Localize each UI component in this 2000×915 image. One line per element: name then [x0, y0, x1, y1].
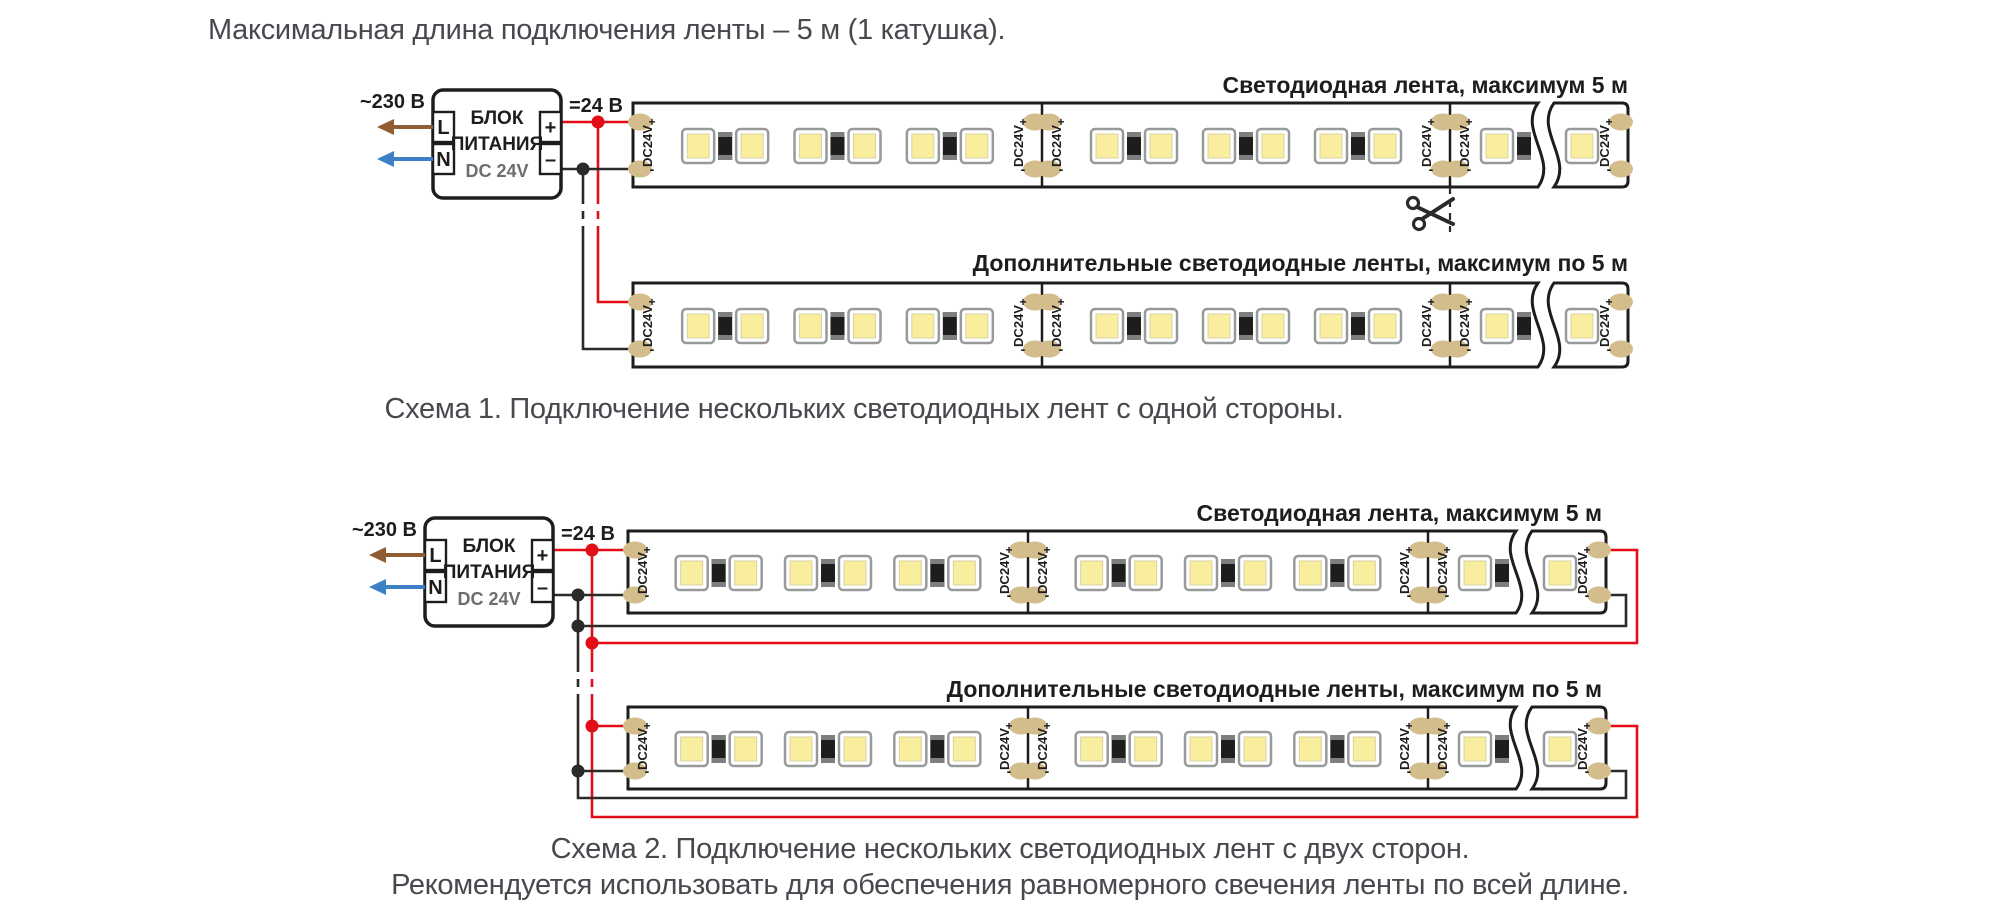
resistor-cap [831, 132, 845, 137]
led [1315, 129, 1347, 163]
resistor [1517, 132, 1531, 160]
strip-voltage-label: DC24V [997, 552, 1012, 594]
resistor-cap [1239, 132, 1253, 137]
led [1130, 732, 1162, 766]
led [839, 556, 871, 590]
led-chip [1150, 314, 1172, 338]
led-chip [1150, 134, 1172, 158]
resistor-cap [821, 758, 835, 763]
led [1203, 129, 1235, 163]
resistor [1112, 559, 1126, 587]
strip-voltage-label: DC24V [1397, 552, 1412, 594]
resistor-cap [712, 559, 726, 564]
resistor [712, 559, 726, 587]
resistor-cap [718, 335, 732, 340]
resistor [1221, 735, 1235, 763]
terminal-L-label: L [437, 117, 449, 139]
led-chip [1208, 134, 1230, 158]
resistor-cap [1517, 155, 1531, 160]
led-chip [1190, 737, 1212, 761]
resistor-cap [718, 132, 732, 137]
resistor [1239, 312, 1253, 340]
solder-pad-minus [1609, 341, 1633, 358]
led-chip [1549, 737, 1571, 761]
scheme1-strip2-label: Дополнительные светодиодные ленты, макси… [973, 250, 1628, 276]
led [1294, 732, 1326, 766]
led [1185, 732, 1217, 766]
resistor [1127, 132, 1141, 160]
led [1091, 309, 1123, 343]
led [1348, 732, 1380, 766]
led [795, 129, 827, 163]
junction-dot [586, 720, 599, 733]
solder-pad-plus [1609, 294, 1633, 311]
led [1294, 556, 1326, 590]
resistor-cap [1127, 132, 1141, 137]
led [948, 732, 980, 766]
led-chip [741, 314, 763, 338]
resistor [1239, 132, 1253, 160]
led-chip [800, 314, 822, 338]
led-chip [1464, 737, 1486, 761]
resistor-cap [1221, 735, 1235, 740]
resistor-cap [1127, 155, 1141, 160]
led-chip [844, 737, 866, 761]
led [1257, 309, 1289, 343]
led-chip [1135, 561, 1157, 585]
led-chip [899, 737, 921, 761]
resistor-cap [1221, 758, 1235, 763]
scheme2-strip2-label: Дополнительные светодиодные ленты, макси… [947, 676, 1602, 702]
resistor-cap [712, 735, 726, 740]
led-chip [854, 314, 876, 338]
led [1239, 732, 1271, 766]
led [1481, 309, 1513, 343]
resistor-cap [831, 335, 845, 340]
resistor-cap [943, 312, 957, 317]
solder-pad-plus [1609, 114, 1633, 131]
led [1566, 309, 1598, 343]
led-chip [1208, 314, 1230, 338]
led-chip [844, 561, 866, 585]
led-chip [1353, 561, 1375, 585]
led-chip [854, 134, 876, 158]
resistor-cap [821, 559, 835, 564]
terminal-minus-label: – [545, 149, 556, 171]
arrow-left-L-icon [369, 547, 386, 563]
led [961, 309, 993, 343]
resistor-cap [930, 735, 944, 740]
resistor-cap [1330, 559, 1344, 564]
strip-voltage-label: DC24V [1419, 125, 1434, 167]
led [1185, 556, 1217, 590]
led [907, 309, 939, 343]
resistor [943, 132, 957, 160]
resistor-cap [1127, 312, 1141, 317]
psu-name-line2: ПИТАНИЯ [451, 134, 543, 155]
strip-voltage-label: DC24V [1575, 552, 1590, 594]
resistor [1495, 735, 1509, 763]
resistor-cap [1517, 312, 1531, 317]
strip-voltage-label: DC24V [1575, 728, 1590, 770]
led [1091, 129, 1123, 163]
junction-dot [586, 544, 599, 557]
terminal-L-label: L [429, 545, 441, 567]
led-chip [1320, 314, 1342, 338]
scheme1-caption: Схема 1. Подключение нескольких светодио… [384, 393, 1343, 426]
led [1257, 129, 1289, 163]
led [849, 129, 881, 163]
solder-pad-minus [1587, 763, 1611, 780]
led [1544, 732, 1576, 766]
resistor-cap [1112, 758, 1126, 763]
junction-dot [586, 637, 599, 650]
strip-voltage-label: DC24V [1035, 552, 1050, 594]
led [730, 732, 762, 766]
scheme2-caption-line1: Схема 2. Подключение нескольких светодио… [551, 833, 1470, 866]
resistor-cap [1239, 155, 1253, 160]
led-strip-additional: +-DC24V+-DC24V+-DC24V+-DC24V+-DC24V+-DC2… [628, 283, 1633, 367]
led [894, 732, 926, 766]
junction-dot [592, 116, 605, 129]
resistor-cap [1351, 132, 1365, 137]
scheme-2: LN+–БЛОКПИТАНИЯDC 24V~230 В=24 В+-DC24V+… [352, 500, 1637, 817]
led-chip [1464, 561, 1486, 585]
resistor-cap [943, 155, 957, 160]
led [1459, 732, 1491, 766]
resistor-cap [1330, 582, 1344, 587]
psu-name-line1: БЛОК [463, 536, 516, 557]
led [1315, 309, 1347, 343]
led [849, 309, 881, 343]
resistor-cap [1112, 559, 1126, 564]
connection-diagrams: LN+–БЛОКПИТАНИЯDC 24V~230 В=24 В+-DC24V+… [0, 0, 2000, 915]
resistor [718, 312, 732, 340]
resistor-cap [712, 582, 726, 587]
psu-name-line1: БЛОК [471, 108, 524, 129]
resistor-cap [1239, 335, 1253, 340]
led-strip-additional: +-DC24V+-DC24V+-DC24V+-DC24V+-DC24V+-DC2… [623, 707, 1611, 789]
resistor-cap [1330, 735, 1344, 740]
resistor [821, 735, 835, 763]
resistor-cap [943, 132, 957, 137]
led [839, 732, 871, 766]
solder-pad-minus [1609, 161, 1633, 178]
solder-pad-plus [1587, 542, 1611, 559]
resistor-cap [1221, 559, 1235, 564]
terminal-plus-label: + [545, 117, 557, 139]
resistor [1351, 132, 1365, 160]
led [682, 309, 714, 343]
resistor [943, 312, 957, 340]
resistor [1127, 312, 1141, 340]
resistor [1330, 735, 1344, 763]
resistor [1112, 735, 1126, 763]
resistor-cap [1351, 312, 1365, 317]
strip-voltage-label: DC24V [1419, 305, 1434, 347]
led-chip [966, 314, 988, 338]
resistor-cap [831, 312, 845, 317]
resistor-cap [712, 758, 726, 763]
resistor-cap [1112, 582, 1126, 587]
arrow-left-N-icon [377, 151, 394, 167]
psu-voltage-label: DC 24V [465, 161, 528, 181]
strip-voltage-label: DC24V [635, 552, 650, 594]
resistor-cap [1239, 312, 1253, 317]
psu-name-line2: ПИТАНИЯ [443, 562, 535, 583]
led-chip [1081, 737, 1103, 761]
resistor-cap [1517, 335, 1531, 340]
strip-voltage-label: DC24V [1049, 125, 1064, 167]
led [1459, 556, 1491, 590]
resistor-cap [831, 155, 845, 160]
resistor [1330, 559, 1344, 587]
led [1145, 129, 1177, 163]
led [785, 732, 817, 766]
led [961, 129, 993, 163]
strip-voltage-label: DC24V [1035, 728, 1050, 770]
strip-voltage-label: DC24V [1435, 728, 1450, 770]
strip-voltage-label: DC24V [1011, 305, 1026, 347]
strip-voltage-label: DC24V [1011, 125, 1026, 167]
led-strip-main: +-DC24V+-DC24V+-DC24V+-DC24V+-DC24V+-DC2… [628, 103, 1633, 232]
led [1544, 556, 1576, 590]
junction-dot [572, 589, 585, 602]
strip-voltage-label: DC24V [997, 728, 1012, 770]
output-voltage-label: =24 В [569, 95, 623, 117]
led [1130, 556, 1162, 590]
led-chip [1320, 134, 1342, 158]
junction-dot [572, 620, 585, 633]
mains-voltage-label: ~230 В [360, 91, 425, 113]
resistor-cap [1495, 735, 1509, 740]
led-chip [1096, 134, 1118, 158]
solder-pad-minus [1587, 587, 1611, 604]
strip-voltage-label: DC24V [1049, 305, 1064, 347]
led-chip [1244, 561, 1266, 585]
resistor [1221, 559, 1235, 587]
psu-voltage-label: DC 24V [457, 589, 520, 609]
led-chip [1486, 134, 1508, 158]
junction-dot [577, 163, 590, 176]
led [894, 556, 926, 590]
resistor-cap [1495, 582, 1509, 587]
strip-voltage-label: DC24V [1435, 552, 1450, 594]
led-chip [912, 134, 934, 158]
led [795, 309, 827, 343]
mains-voltage-label: ~230 В [352, 519, 417, 541]
resistor-cap [1112, 735, 1126, 740]
resistor-cap [1351, 155, 1365, 160]
led-chip [790, 561, 812, 585]
led-chip [741, 134, 763, 158]
led-chip [1299, 737, 1321, 761]
led [736, 309, 768, 343]
led-chip [1096, 314, 1118, 338]
terminal-plus-label: + [537, 545, 549, 567]
led [785, 556, 817, 590]
strip-voltage-label: DC24V [1597, 125, 1612, 167]
led-chip [1081, 561, 1103, 585]
led-chip [1571, 314, 1593, 338]
strip-body [633, 283, 1544, 367]
led [730, 556, 762, 590]
resistor [1351, 312, 1365, 340]
led-chip [1486, 314, 1508, 338]
resistor-cap [1221, 582, 1235, 587]
led-chip [953, 737, 975, 761]
led-chip [1374, 314, 1396, 338]
resistor [831, 312, 845, 340]
strip-voltage-label: DC24V [1597, 305, 1612, 347]
resistor [930, 735, 944, 763]
scheme-1: LN+–БЛОКПИТАНИЯDC 24V~230 В=24 В+-DC24V+… [360, 72, 1633, 367]
led [1076, 556, 1108, 590]
resistor-cap [1127, 335, 1141, 340]
led [1369, 309, 1401, 343]
led-chip [1244, 737, 1266, 761]
scissors-icon [1408, 198, 1454, 230]
resistor-cap [930, 559, 944, 564]
led [676, 556, 708, 590]
led [1566, 129, 1598, 163]
led-chip [735, 737, 757, 761]
resistor-cap [718, 312, 732, 317]
resistor-cap [1330, 758, 1344, 763]
strip-voltage-label: DC24V [640, 125, 655, 167]
wires [556, 116, 641, 350]
resistor-cap [1495, 559, 1509, 564]
led-chip [966, 134, 988, 158]
led-chip [899, 561, 921, 585]
led [1145, 309, 1177, 343]
led [676, 732, 708, 766]
power-supply-unit: LN+–БЛОКПИТАНИЯDC 24V~230 В=24 В [352, 518, 615, 626]
terminal-N-label: N [436, 149, 450, 171]
strip-voltage-label: DC24V [1457, 305, 1472, 347]
led-chip [1190, 561, 1212, 585]
led [1076, 732, 1108, 766]
led-chip [800, 134, 822, 158]
led-chip [912, 314, 934, 338]
terminal-N-label: N [428, 577, 442, 599]
resistor-cap [1351, 335, 1365, 340]
scheme2-strip1-label: Светодиодная лента, максимум 5 м [1197, 500, 1603, 526]
solder-pad-plus [1587, 718, 1611, 735]
wiring-diagram-page: Максимальная длина подключения ленты – 5… [0, 0, 2000, 915]
led-chip [953, 561, 975, 585]
led-chip [1135, 737, 1157, 761]
led [1239, 556, 1271, 590]
led [1348, 556, 1380, 590]
led [907, 129, 939, 163]
led-chip [687, 134, 709, 158]
strip-voltage-label: DC24V [635, 728, 650, 770]
resistor-cap [821, 735, 835, 740]
led [1203, 309, 1235, 343]
led-chip [1571, 134, 1593, 158]
strip-voltage-label: DC24V [1397, 728, 1412, 770]
led-chip [1262, 134, 1284, 158]
cut-mark [1408, 187, 1454, 232]
junction-dot [572, 765, 585, 778]
led-strip-main: +-DC24V+-DC24V+-DC24V+-DC24V+-DC24V+-DC2… [623, 531, 1611, 613]
resistor-cap [1517, 132, 1531, 137]
led-chip [790, 737, 812, 761]
arrow-left-N-icon [369, 579, 386, 595]
resistor-cap [821, 582, 835, 587]
arrow-left-L-icon [377, 119, 394, 135]
strip-voltage-label: DC24V [1457, 125, 1472, 167]
resistor [712, 735, 726, 763]
led-chip [735, 561, 757, 585]
led-chip [687, 314, 709, 338]
resistor [1495, 559, 1509, 587]
resistor [1517, 312, 1531, 340]
resistor-cap [718, 155, 732, 160]
output-voltage-label: =24 В [561, 523, 615, 545]
led [948, 556, 980, 590]
resistor [831, 132, 845, 160]
led [1481, 129, 1513, 163]
led-chip [1262, 314, 1284, 338]
led [1369, 129, 1401, 163]
resistor [930, 559, 944, 587]
terminal-minus-label: – [537, 577, 548, 599]
led-chip [681, 737, 703, 761]
led-chip [1299, 561, 1321, 585]
resistor [821, 559, 835, 587]
resistor [718, 132, 732, 160]
resistor-cap [930, 582, 944, 587]
resistor-cap [943, 335, 957, 340]
led-chip [1549, 561, 1571, 585]
led-chip [1353, 737, 1375, 761]
led-chip [681, 561, 703, 585]
led [736, 129, 768, 163]
led [682, 129, 714, 163]
resistor-cap [930, 758, 944, 763]
strip-body [633, 103, 1544, 187]
strip-voltage-label: DC24V [640, 305, 655, 347]
scheme1-strip1-label: Светодиодная лента, максимум 5 м [1223, 72, 1629, 98]
led-chip [1374, 134, 1396, 158]
resistor-cap [1495, 758, 1509, 763]
scheme2-caption-line2: Рекомендуется использовать для обеспечен… [391, 869, 1629, 902]
